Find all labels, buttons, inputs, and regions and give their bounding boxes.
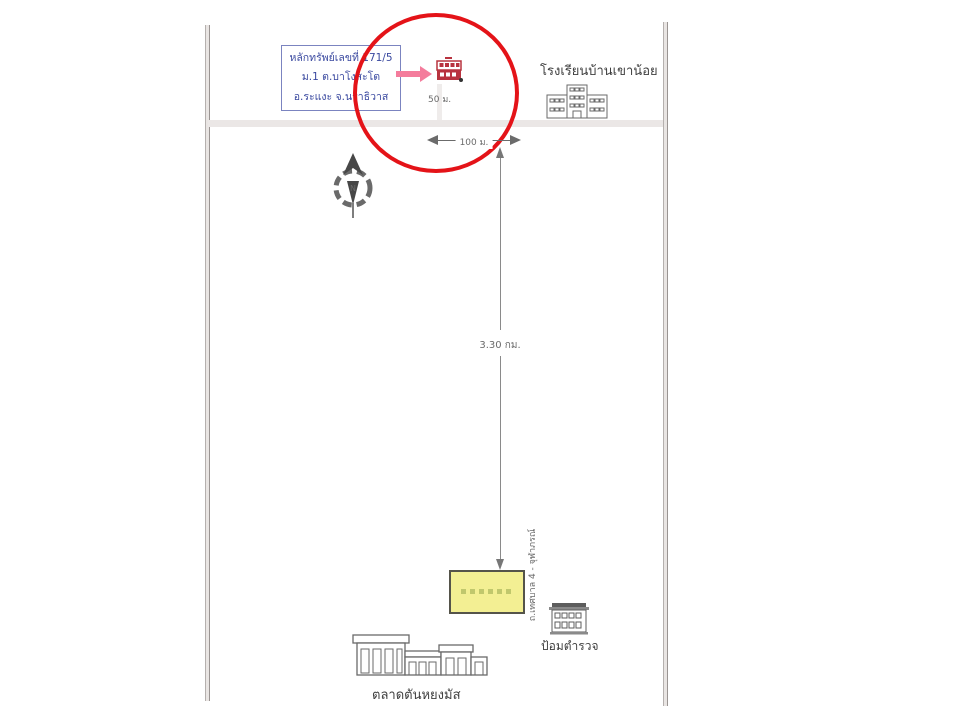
police-box-label: ป้อมตำรวจ bbox=[541, 637, 598, 656]
market-label: ตลาดตันหยงมัส bbox=[372, 684, 461, 705]
arrow-left-head bbox=[427, 135, 438, 145]
police-box-icon bbox=[547, 602, 591, 636]
measure-down-arrowhead bbox=[496, 559, 504, 570]
route-distance-label: 3.30 กม. bbox=[474, 338, 526, 353]
measure-line-lower bbox=[500, 356, 501, 559]
market-building-icon bbox=[352, 633, 488, 679]
highlight-circle bbox=[353, 13, 519, 173]
school-building-icon bbox=[546, 84, 608, 120]
location-map-page: หลักทรัพย์เลขที่ 171/5 ม.1 ต.บาโงสะโต อ.… bbox=[0, 0, 960, 720]
road-frontage-label: 100 ม. bbox=[456, 135, 493, 149]
vertical-road-label: ถ.เทศบาล 4 - จุฬาภรณ์ bbox=[525, 527, 537, 623]
compass-north-icon: N bbox=[326, 151, 380, 219]
school-label: โรงเรียนบ้านเขาน้อย bbox=[540, 60, 658, 81]
arrow-right-head bbox=[510, 135, 521, 145]
page-right-border bbox=[663, 22, 668, 706]
faint-handwriting bbox=[461, 589, 511, 594]
measure-line-upper bbox=[500, 158, 501, 330]
road-frontage-arrow: 100 ม. bbox=[427, 134, 521, 148]
yellow-landmark-box bbox=[449, 570, 525, 614]
compass-n-letter: N bbox=[350, 184, 356, 193]
measure-up-arrowhead bbox=[496, 147, 504, 158]
